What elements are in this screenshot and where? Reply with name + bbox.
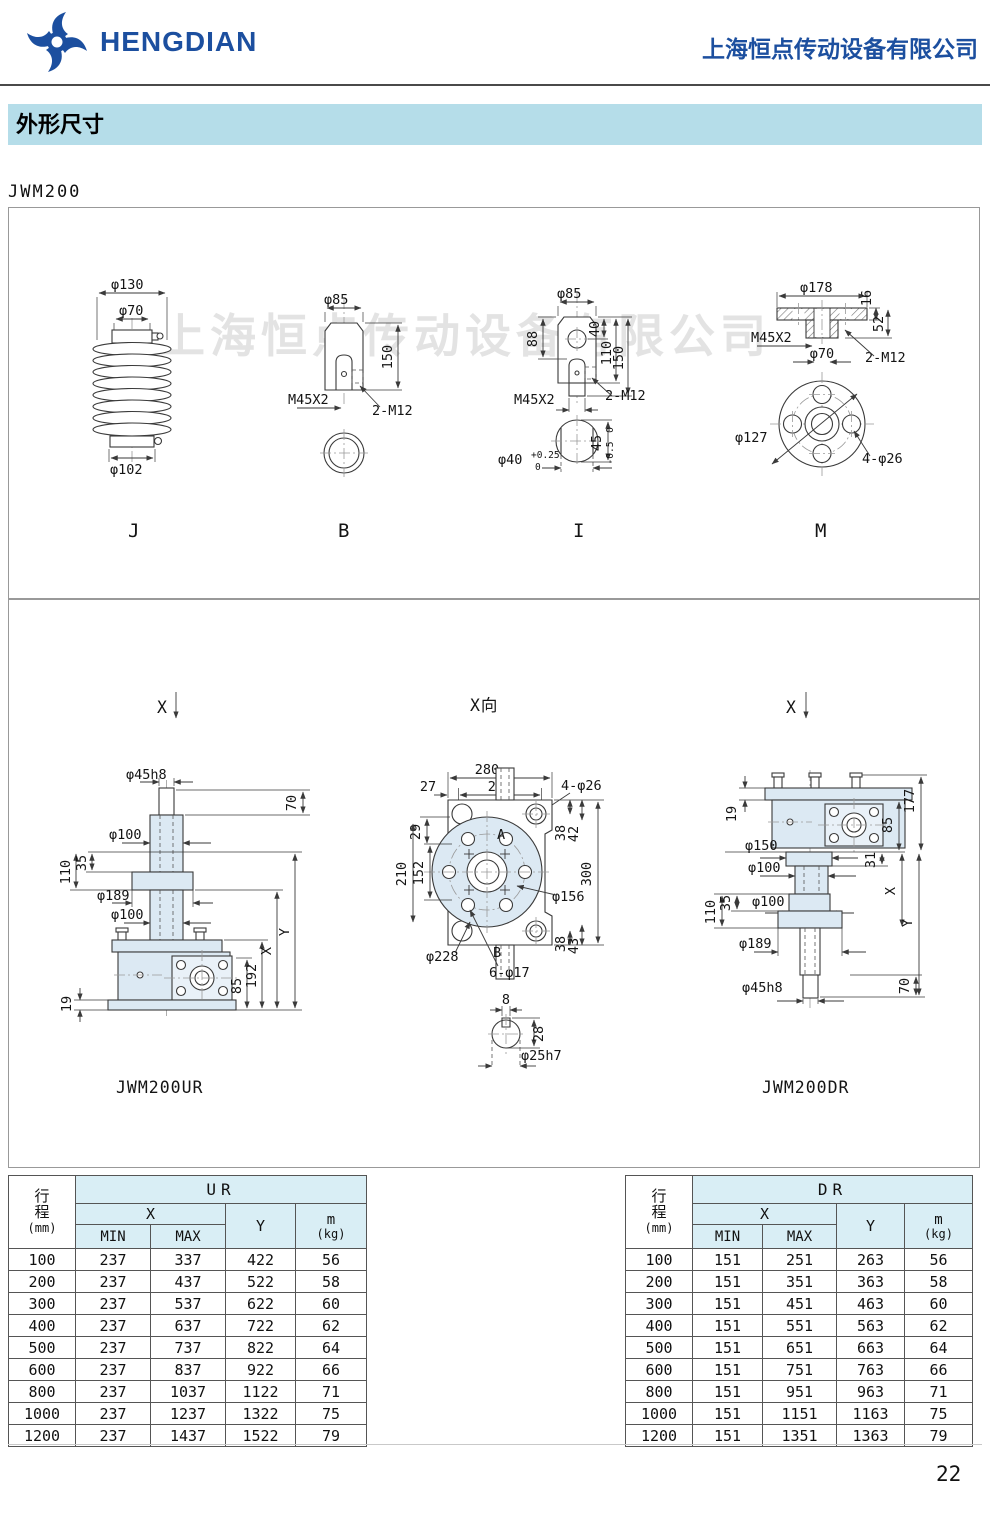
end-fittings-drawings: φ130 φ70 φ102: [9, 208, 979, 598]
table-cell: 151: [693, 1381, 763, 1403]
y-header: Y: [837, 1204, 905, 1249]
table-row: 50015165166364: [626, 1337, 973, 1359]
dim-label: φ100: [111, 907, 144, 923]
table-cell: 837: [151, 1359, 226, 1381]
dim-label: X: [259, 947, 275, 955]
drawing-name: JWM200DR: [762, 1078, 849, 1097]
table-cell: 600: [626, 1359, 693, 1381]
assembly-panel: X φ45h8 70 φ100: [8, 599, 980, 1168]
bottom-divider: [8, 1444, 982, 1445]
dim-label: 42: [566, 826, 582, 842]
dim-label: 19: [59, 996, 75, 1012]
table-cell: 600: [9, 1359, 76, 1381]
table-row: 8002371037112271: [9, 1381, 367, 1403]
dim-label: 70: [284, 795, 300, 811]
table-cell: 637: [151, 1315, 226, 1337]
drawing-xview: X向 280 222 27 77 73 4-φ26: [394, 696, 604, 1068]
table-cell: 60: [905, 1293, 973, 1315]
dim-label: 110: [58, 860, 74, 884]
table-cell: 64: [905, 1337, 973, 1359]
table-row: 60023783792266: [9, 1359, 367, 1381]
x-header: X: [693, 1204, 837, 1225]
dim-label: 192: [244, 964, 260, 988]
table-cell: 237: [76, 1403, 151, 1425]
table-cell: 151: [693, 1249, 763, 1271]
table-cell: 451: [763, 1293, 837, 1315]
table-cell: 1163: [837, 1403, 905, 1425]
min-header: MIN: [693, 1225, 763, 1249]
dim-label: φ178: [800, 280, 833, 296]
table-cell: 537: [151, 1293, 226, 1315]
dim-label: φ70: [119, 303, 143, 319]
dim-label: 40: [587, 321, 603, 337]
dim-label: φ70: [810, 346, 834, 362]
dim-label: φ150: [745, 838, 778, 854]
mass-symbol: m: [296, 1212, 366, 1229]
dim-label: φ100: [109, 827, 142, 843]
table-cell: 300: [626, 1293, 693, 1315]
dim-label: 31: [863, 852, 879, 868]
table-cell: 62: [905, 1315, 973, 1337]
dim-label: φ130: [111, 277, 144, 293]
table-cell: 651: [763, 1337, 837, 1359]
table-cell: 400: [626, 1315, 693, 1337]
table-cell: 551: [763, 1315, 837, 1337]
table-cell: 1322: [226, 1403, 296, 1425]
table-cell: 1237: [151, 1403, 226, 1425]
dim-tolerance: +0.25: [531, 450, 560, 461]
table-cell: 237: [76, 1381, 151, 1403]
table-cell: 60: [296, 1293, 367, 1315]
table-row: 10001511151116375: [626, 1403, 973, 1425]
view-label: X向: [470, 696, 498, 715]
table-cell: 64: [296, 1337, 367, 1359]
table-row: 50023773782264: [9, 1337, 367, 1359]
table-cell: 66: [296, 1359, 367, 1381]
table-cell: 56: [905, 1249, 973, 1271]
dim-label: 70: [897, 978, 913, 994]
y-header: Y: [226, 1204, 296, 1249]
table-row: 30023753762260: [9, 1293, 367, 1315]
table-cell: 58: [296, 1271, 367, 1293]
table-cell: 58: [905, 1271, 973, 1293]
dim-label: φ25h7: [521, 1048, 562, 1064]
dim-label: 19: [724, 806, 740, 822]
dim-label: 27: [420, 779, 436, 795]
table-cell: 75: [905, 1403, 973, 1425]
table-cell: 151: [693, 1403, 763, 1425]
table-cell: 922: [226, 1359, 296, 1381]
end-fittings-panel: 上海恒点传动设备有限公司 φ130 φ70: [8, 207, 980, 599]
table-cell: 100: [9, 1249, 76, 1271]
dim-label: X: [883, 887, 899, 895]
dim-label: 35: [74, 855, 90, 871]
table-row: 10002371237132275: [9, 1403, 367, 1425]
logo-wordmark: HENGDIAN: [100, 26, 257, 58]
table-cell: 337: [151, 1249, 226, 1271]
drawing-letter: M: [815, 520, 826, 542]
dim-label: 85: [229, 978, 245, 994]
dim-label: Y: [900, 919, 916, 927]
dim-label: φ100: [752, 894, 785, 910]
drawing-dr: X: [703, 692, 927, 1097]
ur-table-body: 1002373374225620023743752258300237537622…: [9, 1249, 367, 1447]
table-cell: 1122: [226, 1381, 296, 1403]
table-cell: 363: [837, 1271, 905, 1293]
table-cell: 237: [76, 1315, 151, 1337]
mass-unit: (kg): [296, 1228, 366, 1240]
dim-label: 16: [859, 290, 875, 306]
dim-label: M45X2: [751, 330, 792, 346]
dim-label: 210: [394, 862, 410, 886]
model-label: JWM200: [8, 182, 81, 202]
dim-label: 88: [525, 331, 541, 347]
table-cell: 237: [76, 1271, 151, 1293]
dim-label: 8: [502, 992, 510, 1008]
table-cell: 1000: [9, 1403, 76, 1425]
table-cell: 500: [626, 1337, 693, 1359]
drawing-j: φ130 φ70 φ102: [93, 277, 171, 542]
drawing-letter: B: [338, 520, 349, 542]
table-cell: 300: [9, 1293, 76, 1315]
dim-label: 85: [880, 817, 896, 833]
table-cell: 71: [905, 1381, 973, 1403]
dim-label: 177: [902, 789, 918, 813]
dim-label: 150: [380, 345, 396, 369]
dim-label: 110: [703, 900, 719, 924]
stroke-unit: (mm): [28, 1222, 57, 1235]
table-cell: 1000: [626, 1403, 693, 1425]
dim-label: A: [497, 827, 505, 843]
dim-label: 45: [589, 435, 605, 451]
table-cell: 237: [76, 1293, 151, 1315]
dim-tolerance: 0: [535, 462, 541, 473]
table-cell: 422: [226, 1249, 296, 1271]
dim-label: 6-φ17: [489, 965, 530, 981]
min-header: MIN: [76, 1225, 151, 1249]
table-cell: 66: [905, 1359, 973, 1381]
stroke-header: 行 程 (mm): [626, 1176, 693, 1249]
dim-label: φ189: [739, 936, 772, 952]
table-cell: 500: [9, 1337, 76, 1359]
table-cell: 622: [226, 1293, 296, 1315]
table-cell: 463: [837, 1293, 905, 1315]
header-divider: [0, 84, 990, 86]
group-header: UR: [76, 1176, 367, 1204]
drawing-m: φ178 16 52 M45X2: [735, 280, 906, 542]
drawing-b: φ85 150 M45X2 2-M12 B: [288, 292, 413, 542]
dim-label: φ100: [748, 860, 781, 876]
view-label: X: [157, 698, 168, 717]
dim-label: 28: [531, 1026, 547, 1042]
ur-dimension-table: 行 程 (mm) UR X Y m (kg) MIN MAX 100: [8, 1175, 367, 1447]
dim-label: φ45h8: [742, 980, 783, 996]
dim-label: φ102: [110, 462, 143, 478]
table-cell: 522: [226, 1271, 296, 1293]
max-header: MAX: [151, 1225, 226, 1249]
table-cell: 1151: [763, 1403, 837, 1425]
mass-unit: (kg): [905, 1228, 972, 1240]
mass-header: m (kg): [905, 1204, 973, 1249]
section-title: 外形尺寸: [8, 104, 982, 145]
table-cell: 951: [763, 1381, 837, 1403]
dim-label: 4-φ26: [561, 778, 602, 794]
dim-label: M45X2: [288, 392, 329, 408]
table-cell: 237: [76, 1337, 151, 1359]
dim-label: φ156: [552, 889, 585, 905]
table-cell: 237: [76, 1249, 151, 1271]
dim-label: φ189: [97, 888, 130, 904]
max-header: MAX: [763, 1225, 837, 1249]
page-number: 22: [936, 1462, 961, 1486]
dim-label: M45X2: [514, 392, 555, 408]
drawing-ur: X φ45h8 70 φ100: [58, 692, 310, 1097]
table-cell: 737: [151, 1337, 226, 1359]
dim-label: φ85: [557, 286, 581, 302]
table-cell: 62: [296, 1315, 367, 1337]
table-cell: 800: [9, 1381, 76, 1403]
table-row: 10023733742256: [9, 1249, 367, 1271]
table-cell: 1037: [151, 1381, 226, 1403]
table-cell: 763: [837, 1359, 905, 1381]
dim-label: 43: [566, 938, 582, 954]
table-cell: 56: [296, 1249, 367, 1271]
table-cell: 151: [693, 1359, 763, 1381]
group-header: DR: [693, 1176, 973, 1204]
stroke-char: 程: [651, 1205, 666, 1221]
table-cell: 663: [837, 1337, 905, 1359]
dim-label: φ45h8: [126, 767, 167, 783]
dim-label: 2-M12: [865, 350, 906, 366]
stroke-header: 行 程 (mm): [9, 1176, 76, 1249]
view-label: X: [786, 698, 797, 717]
company-name: 上海恒点传动设备有限公司: [702, 30, 978, 64]
table-cell: 251: [763, 1249, 837, 1271]
table-row: 40023763772262: [9, 1315, 367, 1337]
mass-header: m (kg): [296, 1204, 367, 1249]
mass-symbol: m: [905, 1212, 972, 1229]
dr-table-body: 1001512512635620015135136358300151451463…: [626, 1249, 973, 1447]
assembly-drawings: X φ45h8 70 φ100: [9, 600, 979, 1167]
dim-label: 300: [579, 862, 595, 886]
table-row: 20023743752258: [9, 1271, 367, 1293]
dr-dimension-table: 行 程 (mm) DR X Y m (kg) MIN MAX 100: [625, 1175, 973, 1447]
table-cell: 400: [9, 1315, 76, 1337]
stroke-char: 行: [34, 1189, 49, 1205]
table-cell: 800: [626, 1381, 693, 1403]
dim-label: 152: [411, 861, 427, 885]
table-cell: 237: [76, 1359, 151, 1381]
dim-label: 29: [408, 824, 424, 840]
dim-label: Y: [277, 928, 293, 936]
drawing-i: φ85 88 40 110: [498, 286, 646, 542]
table-cell: 563: [837, 1315, 905, 1337]
drawing-name: JWM200UR: [116, 1078, 203, 1097]
table-cell: 437: [151, 1271, 226, 1293]
table-cell: 151: [693, 1271, 763, 1293]
dim-label: 2-M12: [605, 388, 646, 404]
dim-label: φ40: [498, 452, 522, 468]
table-row: 80015195196371: [626, 1381, 973, 1403]
table-cell: 351: [763, 1271, 837, 1293]
dim-label: φ127: [735, 430, 768, 446]
dim-label: 35: [718, 895, 734, 911]
table-cell: 75: [296, 1403, 367, 1425]
table-cell: 100: [626, 1249, 693, 1271]
table-cell: 200: [626, 1271, 693, 1293]
stroke-char: 程: [34, 1205, 49, 1221]
section-banner: 外形尺寸: [8, 104, 982, 145]
dim-label: 52: [871, 316, 887, 332]
table-cell: 822: [226, 1337, 296, 1359]
table-row: 60015175176366: [626, 1359, 973, 1381]
dim-tolerance: 0: [605, 427, 616, 433]
hengdian-logo-icon: [26, 10, 88, 74]
dim-label: φ85: [324, 292, 348, 308]
table-cell: 71: [296, 1381, 367, 1403]
drawing-letter: J: [128, 520, 139, 542]
table-cell: 963: [837, 1381, 905, 1403]
dim-label: φ228: [426, 949, 459, 965]
table-cell: 751: [763, 1359, 837, 1381]
table-row: 30015145146360: [626, 1293, 973, 1315]
dim-label: 150: [611, 346, 627, 370]
x-header: X: [76, 1204, 226, 1225]
table-cell: 200: [9, 1271, 76, 1293]
table-cell: 151: [693, 1337, 763, 1359]
table-cell: 263: [837, 1249, 905, 1271]
table-cell: 722: [226, 1315, 296, 1337]
stroke-char: 行: [651, 1189, 666, 1205]
table-cell: 151: [693, 1315, 763, 1337]
table-cell: 151: [693, 1293, 763, 1315]
drawing-letter: I: [573, 520, 584, 542]
table-row: 10015125126356: [626, 1249, 973, 1271]
table-row: 40015155156362: [626, 1315, 973, 1337]
stroke-unit: (mm): [645, 1222, 674, 1235]
catalog-page: HENGDIAN 上海恒点传动设备有限公司 外形尺寸 JWM200 上海恒点传动…: [0, 0, 990, 1513]
table-row: 20015135136358: [626, 1271, 973, 1293]
dim-tolerance: -0.5: [605, 442, 616, 465]
